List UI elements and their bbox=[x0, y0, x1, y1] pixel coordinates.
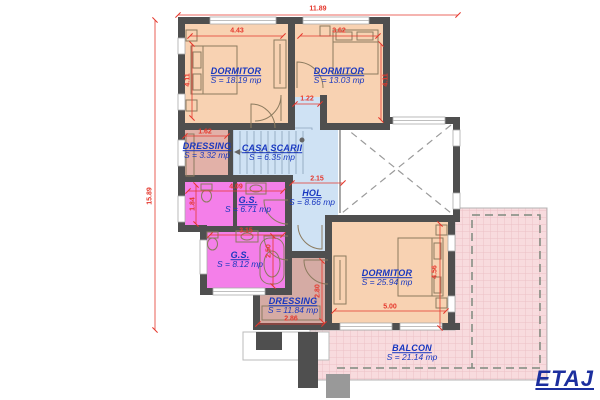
dim-dormitor2-depth: 4.11 bbox=[383, 73, 390, 86]
label-casa-scarii: CASA SCARII S = 6.35 mp bbox=[242, 143, 302, 163]
dim-hol-width: 2.15 bbox=[310, 176, 324, 183]
dim-dormitor1-width: 4.43 bbox=[230, 28, 244, 35]
label-gs-1: G.S. S = 6.71 mp bbox=[225, 195, 271, 215]
dim-overall-height: 15.89 bbox=[147, 187, 154, 205]
floor-plan: DORMITOR S = 18.19 mp DORMITOR S = 13.03… bbox=[0, 0, 600, 400]
dim-gs2-depth: 2.50 bbox=[266, 244, 273, 258]
dim-dormitor3-depth: 4.56 bbox=[432, 265, 439, 279]
label-gs-2: G.S. S = 8.12 mp bbox=[217, 250, 263, 270]
dim-dressing2-depth: 2.80 bbox=[315, 284, 322, 298]
dim-dormitor3-width: 5.00 bbox=[383, 304, 397, 311]
dim-overall-width: 11.89 bbox=[309, 6, 326, 13]
plan-title: ETAJ bbox=[535, 366, 594, 392]
label-dormitor-3: DORMITOR S = 25.94 mp bbox=[362, 268, 413, 288]
label-balcon: BALCON S = 21.14 mp bbox=[387, 343, 438, 363]
stair-landing-dot bbox=[300, 138, 305, 143]
dim-passage-width: 1.22 bbox=[300, 96, 314, 103]
dim-dressing2-width: 2.86 bbox=[284, 316, 298, 323]
label-dormitor-1: DORMITOR S = 18.19 mp bbox=[211, 66, 262, 86]
dim-gs1-depth: 1.84 bbox=[190, 197, 197, 211]
dim-dressing1-width: 1.62 bbox=[198, 129, 212, 136]
label-dressing-1: DRESSING S = 3.32 mp bbox=[183, 141, 232, 161]
dim-gs2-width: 3.15 bbox=[239, 228, 253, 235]
dim-dormitor2-width: 3.62 bbox=[332, 28, 346, 35]
label-dormitor-2: DORMITOR S = 13.03 mp bbox=[314, 66, 365, 86]
dim-gs1-width: 4.09 bbox=[229, 184, 243, 191]
label-hol: HOL S = 8.66 mp bbox=[289, 188, 335, 208]
dim-dormitor1-depth: 4.11 bbox=[185, 73, 192, 86]
label-dressing-2: DRESSING S = 11.84 mp bbox=[268, 296, 318, 316]
